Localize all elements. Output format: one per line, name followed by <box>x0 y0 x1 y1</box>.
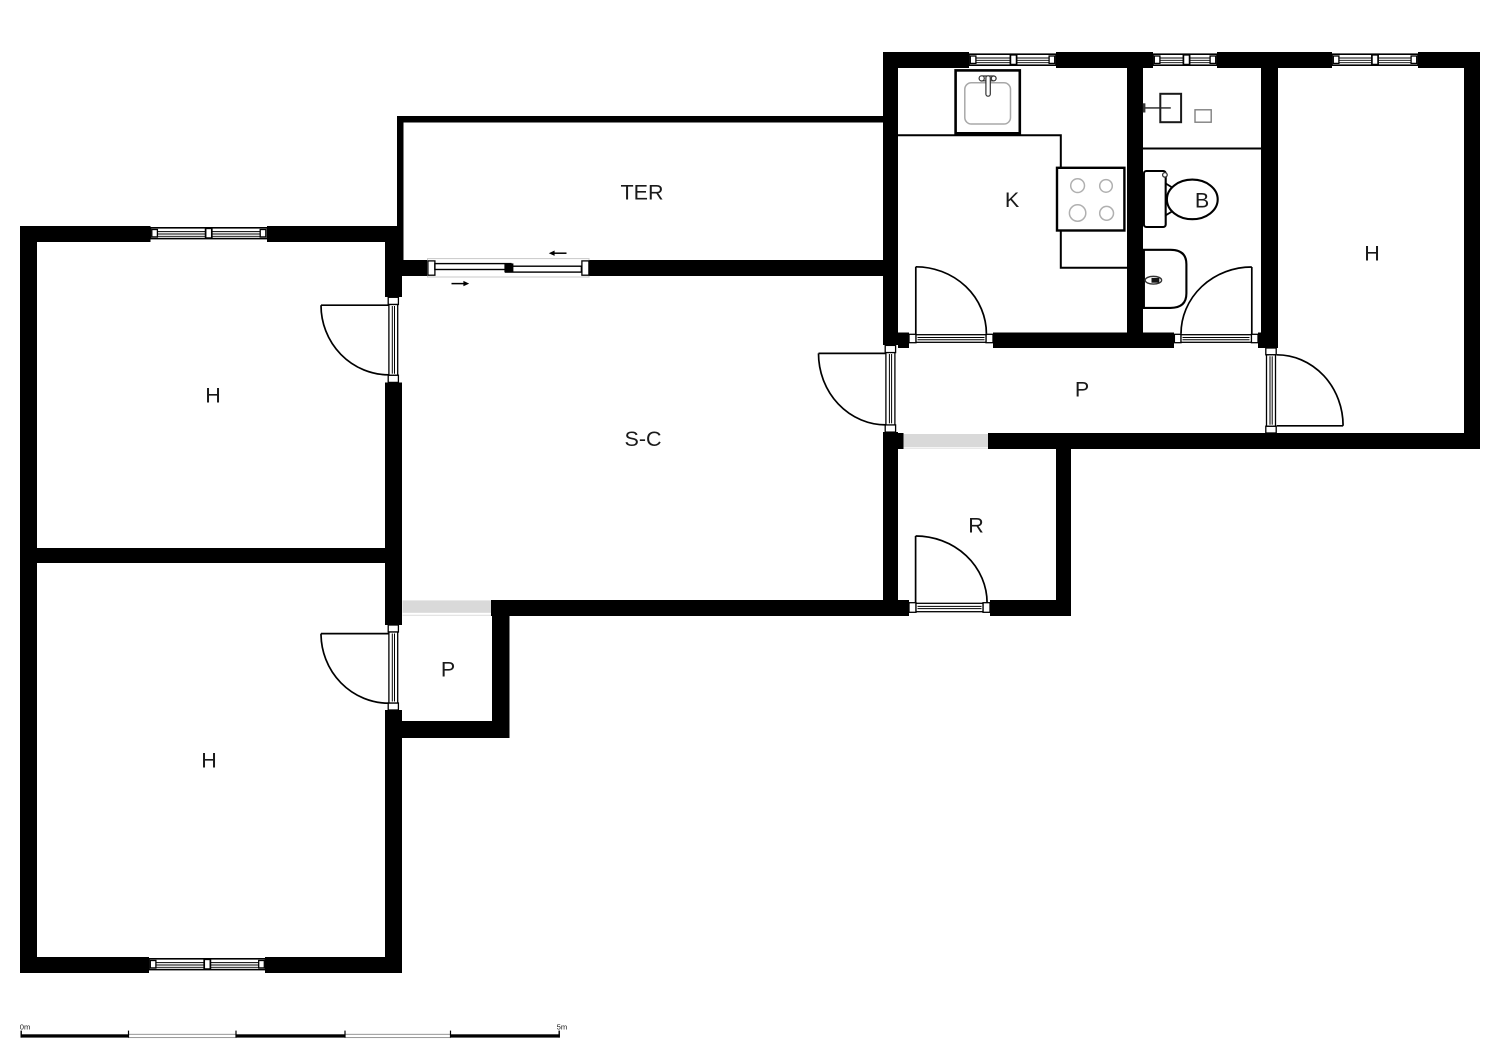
svg-text:P: P <box>1075 378 1089 402</box>
svg-text:P: P <box>441 658 455 682</box>
svg-text:5m: 5m <box>557 1023 568 1032</box>
svg-text:B: B <box>1195 189 1209 213</box>
svg-text:H: H <box>205 384 221 408</box>
svg-text:0m: 0m <box>20 1023 31 1032</box>
svg-text:TER: TER <box>621 181 664 205</box>
svg-text:K: K <box>1005 188 1020 212</box>
svg-text:R: R <box>968 514 984 538</box>
svg-text:H: H <box>1364 242 1380 266</box>
svg-text:S-C: S-C <box>624 427 661 451</box>
svg-text:H: H <box>201 749 217 773</box>
